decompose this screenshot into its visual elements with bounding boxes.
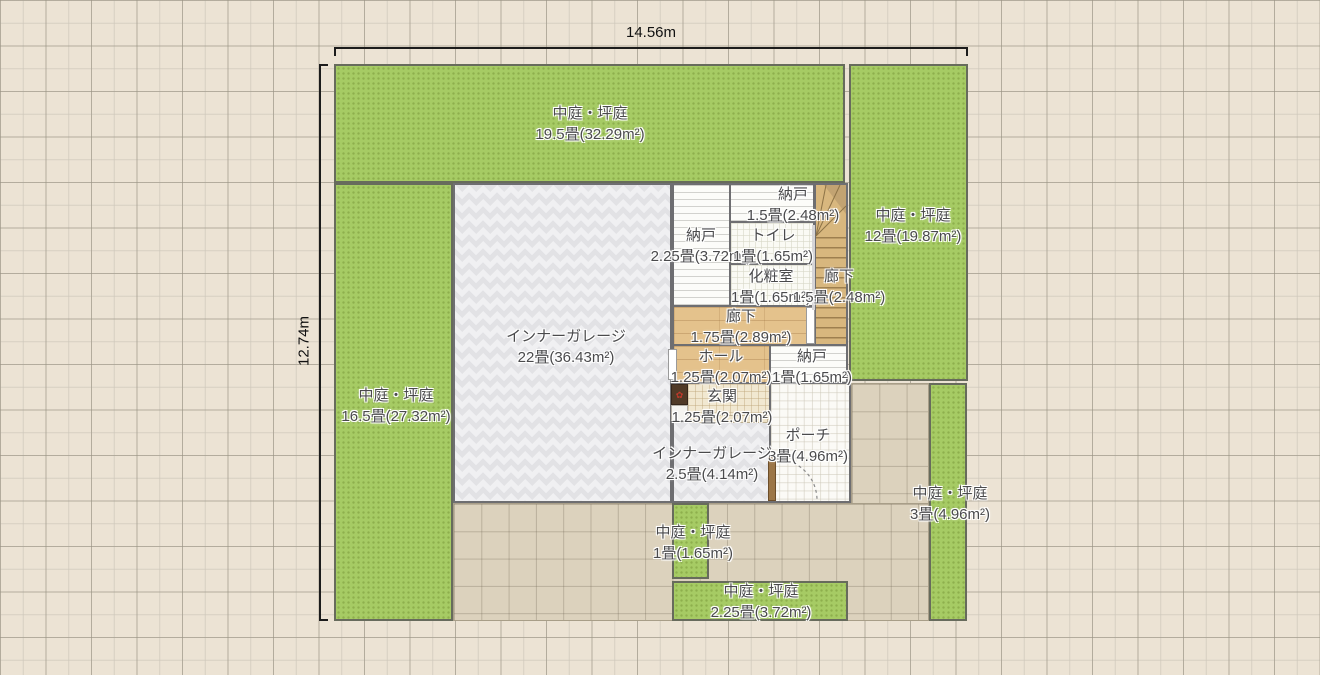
dimension-height-label: 12.74m [296,316,313,366]
room-courtyard-bottom-right[interactable] [929,383,967,621]
room-courtyard-top[interactable] [334,64,845,183]
terrace-paving-right[interactable] [851,383,929,504]
room-storage-left[interactable] [672,183,731,307]
room-inner-garage[interactable] [453,183,672,503]
corridor-door-opening[interactable] [806,307,815,344]
dimension-bracket-height [319,64,328,621]
dimension-bracket-width [334,47,968,56]
staircase-treads [816,237,846,343]
room-porch[interactable] [769,382,851,503]
room-toilet[interactable] [729,221,815,265]
floorplan-canvas[interactable]: 14.56m 12.74m ✿ 中庭・坪庭19.5畳(32.29m²) 中庭・坪… [0,0,1320,675]
room-storage-hall[interactable] [769,344,848,384]
room-courtyard-right[interactable] [849,64,968,381]
room-inner-garage-small[interactable] [672,421,771,503]
room-corridor-stairs[interactable] [814,183,848,346]
entrance-step[interactable] [690,415,768,423]
shoe-cabinet[interactable]: ✿ [671,384,688,405]
dimension-width-label: 14.56m [626,24,676,41]
room-courtyard-bottom-small[interactable] [672,503,709,579]
room-storage-top[interactable] [729,183,815,223]
room-corridor[interactable] [672,305,815,346]
stair-handrail [812,225,815,310]
shoe-cabinet-flower-icon: ✿ [676,390,684,400]
room-powder-room[interactable] [729,263,815,307]
room-courtyard-bottom[interactable] [672,581,848,621]
porch-door-leaf[interactable] [768,457,776,501]
room-hall[interactable] [672,344,771,384]
entrance-counter[interactable] [671,405,688,421]
hall-door-opening[interactable] [668,349,677,380]
room-courtyard-left[interactable] [334,183,453,621]
